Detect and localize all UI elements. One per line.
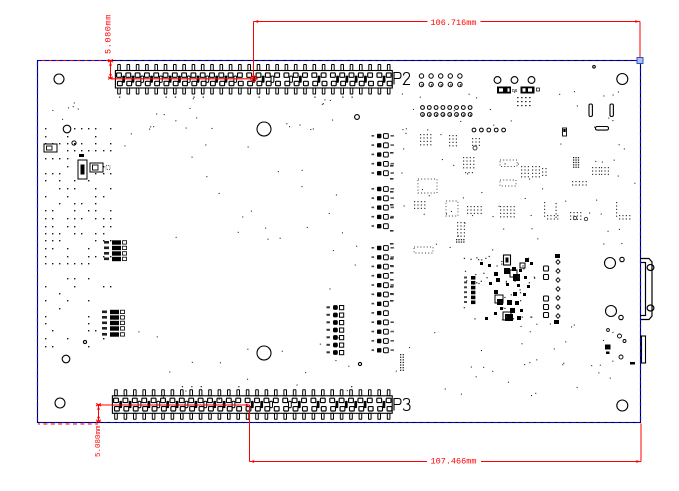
svg-text:5.080mm: 5.080mm	[104, 14, 114, 54]
svg-text:5.080mm: 5.080mm	[95, 425, 103, 457]
svg-text:107.466mm: 107.466mm	[431, 457, 477, 467]
svg-text:D6: D6	[512, 88, 518, 94]
svg-text:106.716mm: 106.716mm	[431, 18, 477, 28]
